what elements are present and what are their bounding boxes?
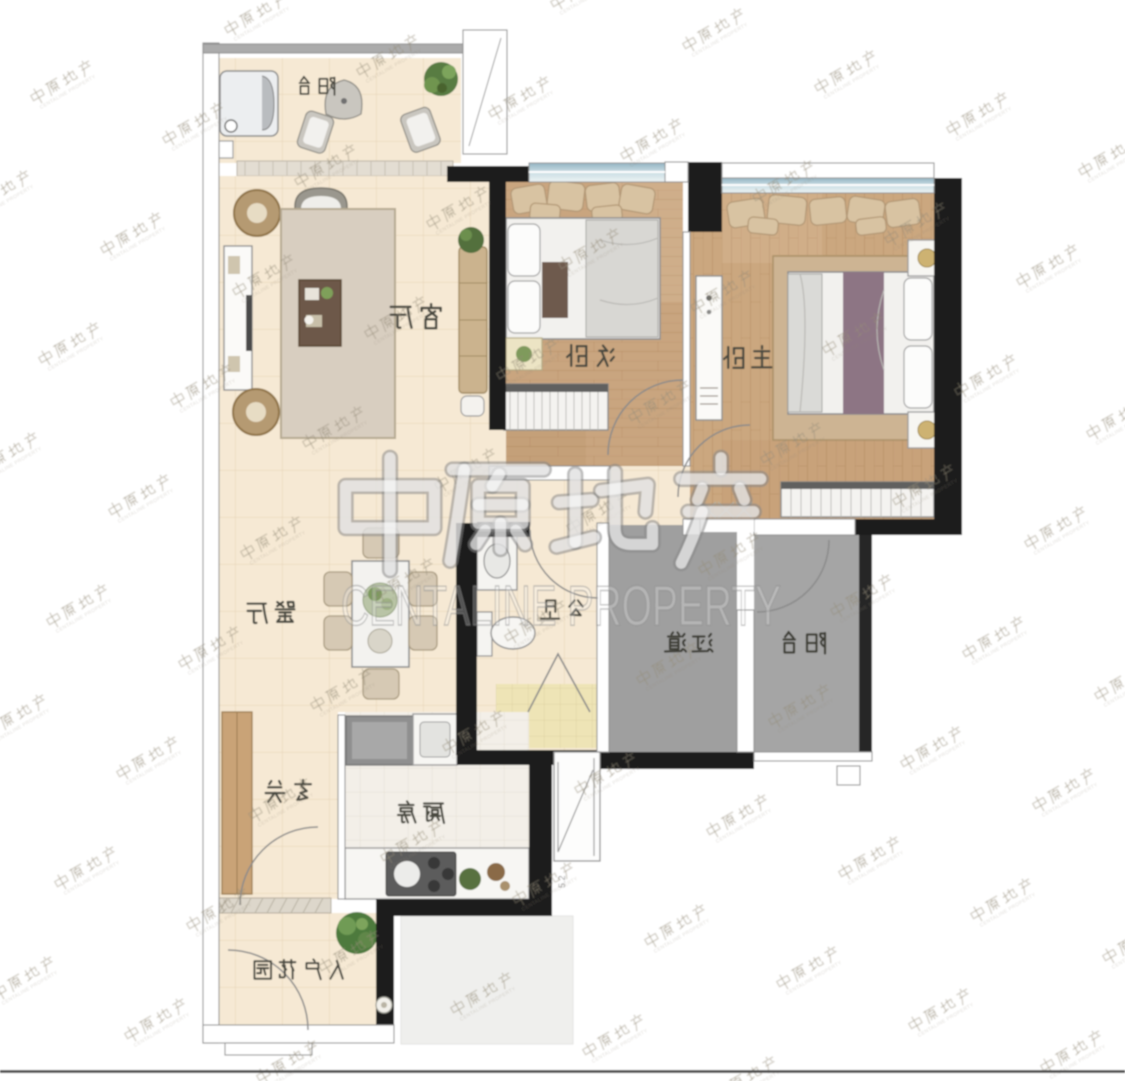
svg-text:CENTALINE PROPERTY: CENTALINE PROPERTY	[341, 574, 781, 638]
